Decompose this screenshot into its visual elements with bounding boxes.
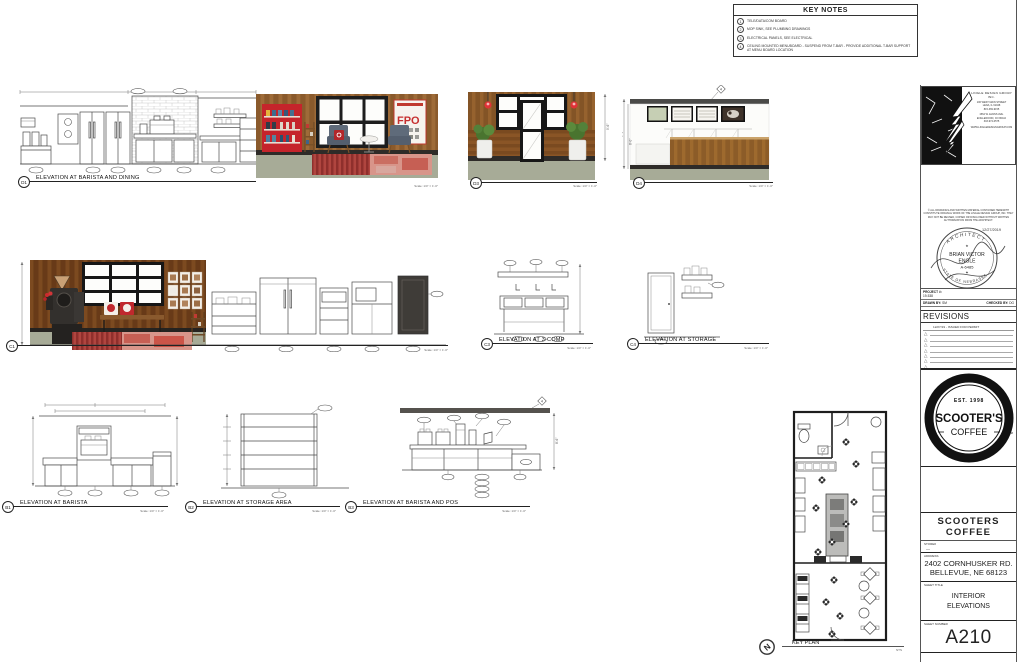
revision-row: △ (924, 353, 1013, 358)
architect-stamp: ARCHITECT ★ BRIAN VICTOR ENGLE A-6485 ★ … (925, 224, 1009, 290)
revision-row: △ (924, 358, 1013, 363)
scale-note: Scale: 1/4" = 1'-0" (713, 184, 773, 188)
project-number: 19-538 (923, 294, 933, 298)
checked-by: DG (1009, 301, 1014, 305)
elevation-d3-rendering: 9'-6" (468, 88, 613, 180)
elevation-label-b2: B2 ELEVATION AT STORAGE AREA (185, 496, 340, 509)
key-note-number: 1 (737, 18, 744, 25)
revision-delta-icon: △ (924, 331, 928, 336)
svg-text:9'-6": 9'-6" (622, 131, 624, 137)
elevation-ref-bubble: C1 (6, 340, 18, 352)
firm-name: LINGLE DESIGN GROUP INC. (968, 91, 1015, 99)
store-value: — (924, 546, 1013, 551)
scale-note: Scale: 1/4" = 1'-0" (276, 509, 336, 513)
elevation-title: ELEVATION AT BARISTA AND DINING (24, 175, 140, 181)
elevation-c4-lineart (638, 255, 726, 345)
sheet-title-section: SHEET TITLE INTERIOR ELEVATIONS (921, 582, 1016, 621)
elevation-ref-bubble: B2 (185, 501, 197, 513)
elevation-ref-bubble: C4 (627, 338, 639, 350)
titleblock-divider (921, 466, 1016, 467)
company-name: SCOOTERS COFFEE (921, 513, 1016, 541)
store-section: STORE# — (921, 541, 1016, 553)
elevation-d4-rendering: 4 9'-6" 8'-0" (622, 85, 777, 180)
elevation-title: ELEVATION AT STORAGE AREA (191, 500, 292, 506)
scale-note: Scale: 1/4" = 1'-0" (537, 184, 597, 188)
elevation-ref-bubble: C3 (481, 338, 493, 350)
elevation-b3-lineart: 4 8'-6" (392, 396, 572, 510)
svg-text:A-6485: A-6485 (961, 265, 975, 270)
elevation-d1-rendering: FPO (256, 86, 438, 178)
revision-delta-icon: △ (924, 353, 928, 358)
elevation-label-b1: B1 ELEVATION AT BARISTA (2, 496, 168, 509)
svg-text:9'-6": 9'-6" (606, 124, 610, 130)
elevation-title: ELEVATION AT BARISTA (8, 500, 88, 506)
key-note-text: TELE/DATA/COM BOARD (747, 18, 787, 23)
revisions-block: REVISIONS 12/27/19 - ISSUED FOR PERMIT △… (921, 310, 1016, 368)
address-line2: BELLEVUE, NE 68123 (924, 568, 1013, 577)
svg-text:8'-0": 8'-0" (629, 139, 633, 145)
elevation-ref-bubble: D3 (470, 177, 482, 189)
svg-text:4: 4 (720, 87, 722, 91)
key-note-row: 2 MOP SINK, SEE PLUMBING DRAWINGS (734, 25, 917, 34)
svg-text:TM: TM (1009, 431, 1013, 435)
scale-note: Scale: 1/4" = 1'-0" (388, 348, 448, 352)
sheet-number-section: SHEET NUMBER A210 (921, 621, 1016, 653)
svg-text:EST. 1998: EST. 1998 (954, 398, 984, 404)
key-notes-box: KEY NOTES 1 TELE/DATA/COM BOARD 2 MOP SI… (733, 4, 918, 57)
scooters-coffee-logo: EST. 1998 SCOOTER'S COFFEE TM (924, 372, 1014, 464)
drawn-by-label: DRAWN BY: (923, 301, 941, 305)
elevation-b2-lineart (213, 400, 361, 506)
revision-row: △ (924, 336, 1013, 341)
revision-delta-icon: △ (924, 358, 928, 363)
elevation-ref-bubble: B1 (2, 501, 14, 513)
key-note-row: 1 TELE/DATA/COM BOARD (734, 16, 917, 25)
elevation-label-c4: C4 ELEVATION AT STORAGE (627, 333, 769, 346)
key-note-number: 3 (737, 35, 744, 42)
stamp-date: 12/27/2019 (982, 228, 1001, 232)
revision-delta-icon: △ (924, 337, 928, 342)
revision-row: △ (924, 342, 1013, 347)
revisions-title: REVISIONS (921, 311, 1016, 323)
key-note-number: 2 (737, 26, 744, 33)
sheet-title-line2: ELEVATIONS (924, 602, 1013, 613)
drawn-by: SM (942, 301, 947, 305)
elevation-label-c1: C1 (6, 335, 448, 348)
scale-note: Scale: 1/4" = 1'-0" (531, 346, 591, 350)
revision-row: △ (924, 331, 1013, 336)
elevation-c3-lineart (486, 258, 596, 344)
key-plan-title: KEY PLAN (782, 640, 819, 646)
svg-text:BRIAN VICTOR: BRIAN VICTOR (949, 252, 985, 258)
key-note-text: ELECTRICAL PANELS, SEE ELECTRICAL (747, 35, 812, 40)
scale-note: Scale: 1/4" = 1'-0" (378, 184, 438, 188)
elevation-title: ELEVATION AT STORAGE (633, 337, 716, 343)
sheet-title-line1: INTERIOR (924, 592, 1013, 603)
copyright-disclaimer: © ALL DRAWINGS AND WRITTEN MATERIAL CONT… (922, 209, 1015, 222)
project-info-block: PROJECT #: 19-538 DRAWN BY: SM CHECKED B… (921, 288, 1016, 307)
revision-delta-icon: △ (924, 348, 928, 353)
firm-logo-box: LINGLE DESIGN GROUP INC. 106 WEST MAIN S… (921, 86, 1016, 165)
titleblock-bottom: SCOOTERS COFFEE STORE# — ADDRESS 2402 CO… (921, 512, 1016, 653)
checked-by-label: CHECKED BY: (986, 301, 1008, 305)
scale-note: Scale: 1/4" = 1'-0" (104, 509, 164, 513)
titleblock-divider (921, 368, 1016, 370)
key-note-text: MOP SINK, SEE PLUMBING DRAWINGS (747, 26, 810, 31)
svg-text:4: 4 (541, 399, 543, 403)
sheet-right-border (1016, 0, 1017, 662)
address-line1: 2402 CORNHUSKER RD. (924, 559, 1013, 568)
svg-text:8'-6": 8'-6" (555, 438, 559, 444)
key-plan-scale: NTS (896, 648, 902, 652)
revision-row: △ (924, 347, 1013, 352)
svg-text:SCOOTER'S: SCOOTER'S (935, 413, 1003, 425)
elevation-title: ELEVATION AT BARISTA AND POS (351, 500, 458, 506)
scale-note: Scale: 1/4" = 1'-0" (466, 509, 526, 513)
key-note-number: 4 (737, 43, 744, 50)
svg-text:COFFEE: COFFEE (951, 427, 988, 437)
key-note-text: CEILING MOUNTED MENUBOARD - SUSPEND FROM… (747, 43, 914, 53)
key-note-row: 3 ELECTRICAL PANELS, SEE ELECTRICAL (734, 33, 917, 42)
svg-text:★: ★ (965, 271, 969, 275)
svg-text:★: ★ (965, 244, 969, 248)
elevation-label-b3: B3 ELEVATION AT BARISTA AND POS (345, 496, 530, 509)
key-notes-title: KEY NOTES (734, 5, 917, 16)
elevation-ref-bubble: D4 (633, 177, 645, 189)
elevation-d1-lineart (18, 88, 258, 176)
key-plan-label: KEY PLAN NTS (772, 637, 904, 650)
revision-delta-icon: △ (924, 342, 928, 347)
scale-note: Scale: 1/4" = 1'-0" (708, 346, 768, 350)
key-note-row: 4 CEILING MOUNTED MENUBOARD - SUSPEND FR… (734, 42, 917, 53)
sheet-number: A210 (924, 626, 1013, 651)
address-section: ADDRESS 2402 CORNHUSKER RD. BELLEVUE, NE… (921, 553, 1016, 582)
elevation-ref-bubble: B3 (345, 501, 357, 513)
firm-text: LINGLE DESIGN GROUP INC. 106 WEST MAIN S… (968, 91, 1015, 129)
drawing-sheet: KEY NOTES 1 TELE/DATA/COM BOARD 2 MOP SI… (0, 0, 1024, 662)
revision-entry: 12/27/19 - ISSUED FOR PERMIT (923, 323, 1014, 331)
key-plan-drawing (788, 406, 900, 646)
elevation-label-d1: D1 ELEVATION AT BARISTA AND DINING (18, 171, 256, 184)
elevation-label-c3: C3 ELEVATION AT 3-COMP (481, 333, 593, 346)
elevation-title: ELEVATION AT 3-COMP (487, 337, 565, 343)
elevation-ref-bubble: D1 (18, 176, 30, 188)
elevation-b1-lineart (25, 398, 185, 508)
